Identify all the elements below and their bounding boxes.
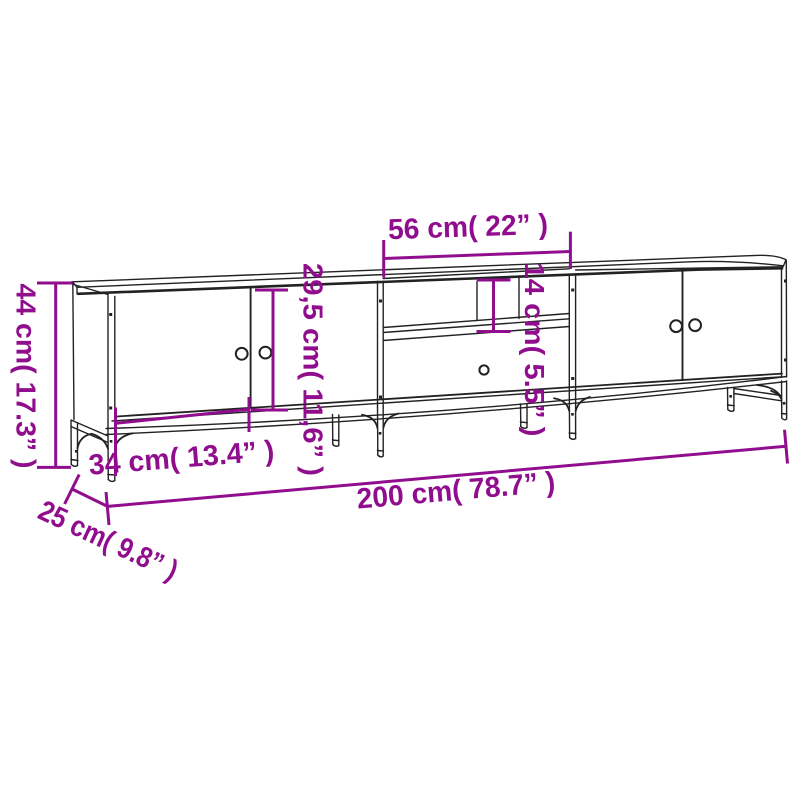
- svg-text:200 cm( 78.7” ): 200 cm( 78.7” ): [355, 466, 556, 515]
- svg-text:44 cm( 17.3” ): 44 cm( 17.3” ): [10, 284, 41, 469]
- svg-text:14 cm( 5.5” ): 14 cm( 5.5” ): [519, 263, 550, 437]
- svg-text:29,5 cm( 11,6” ): 29,5 cm( 11,6” ): [298, 263, 329, 476]
- svg-text:56 cm( 22” ): 56 cm( 22” ): [387, 209, 548, 247]
